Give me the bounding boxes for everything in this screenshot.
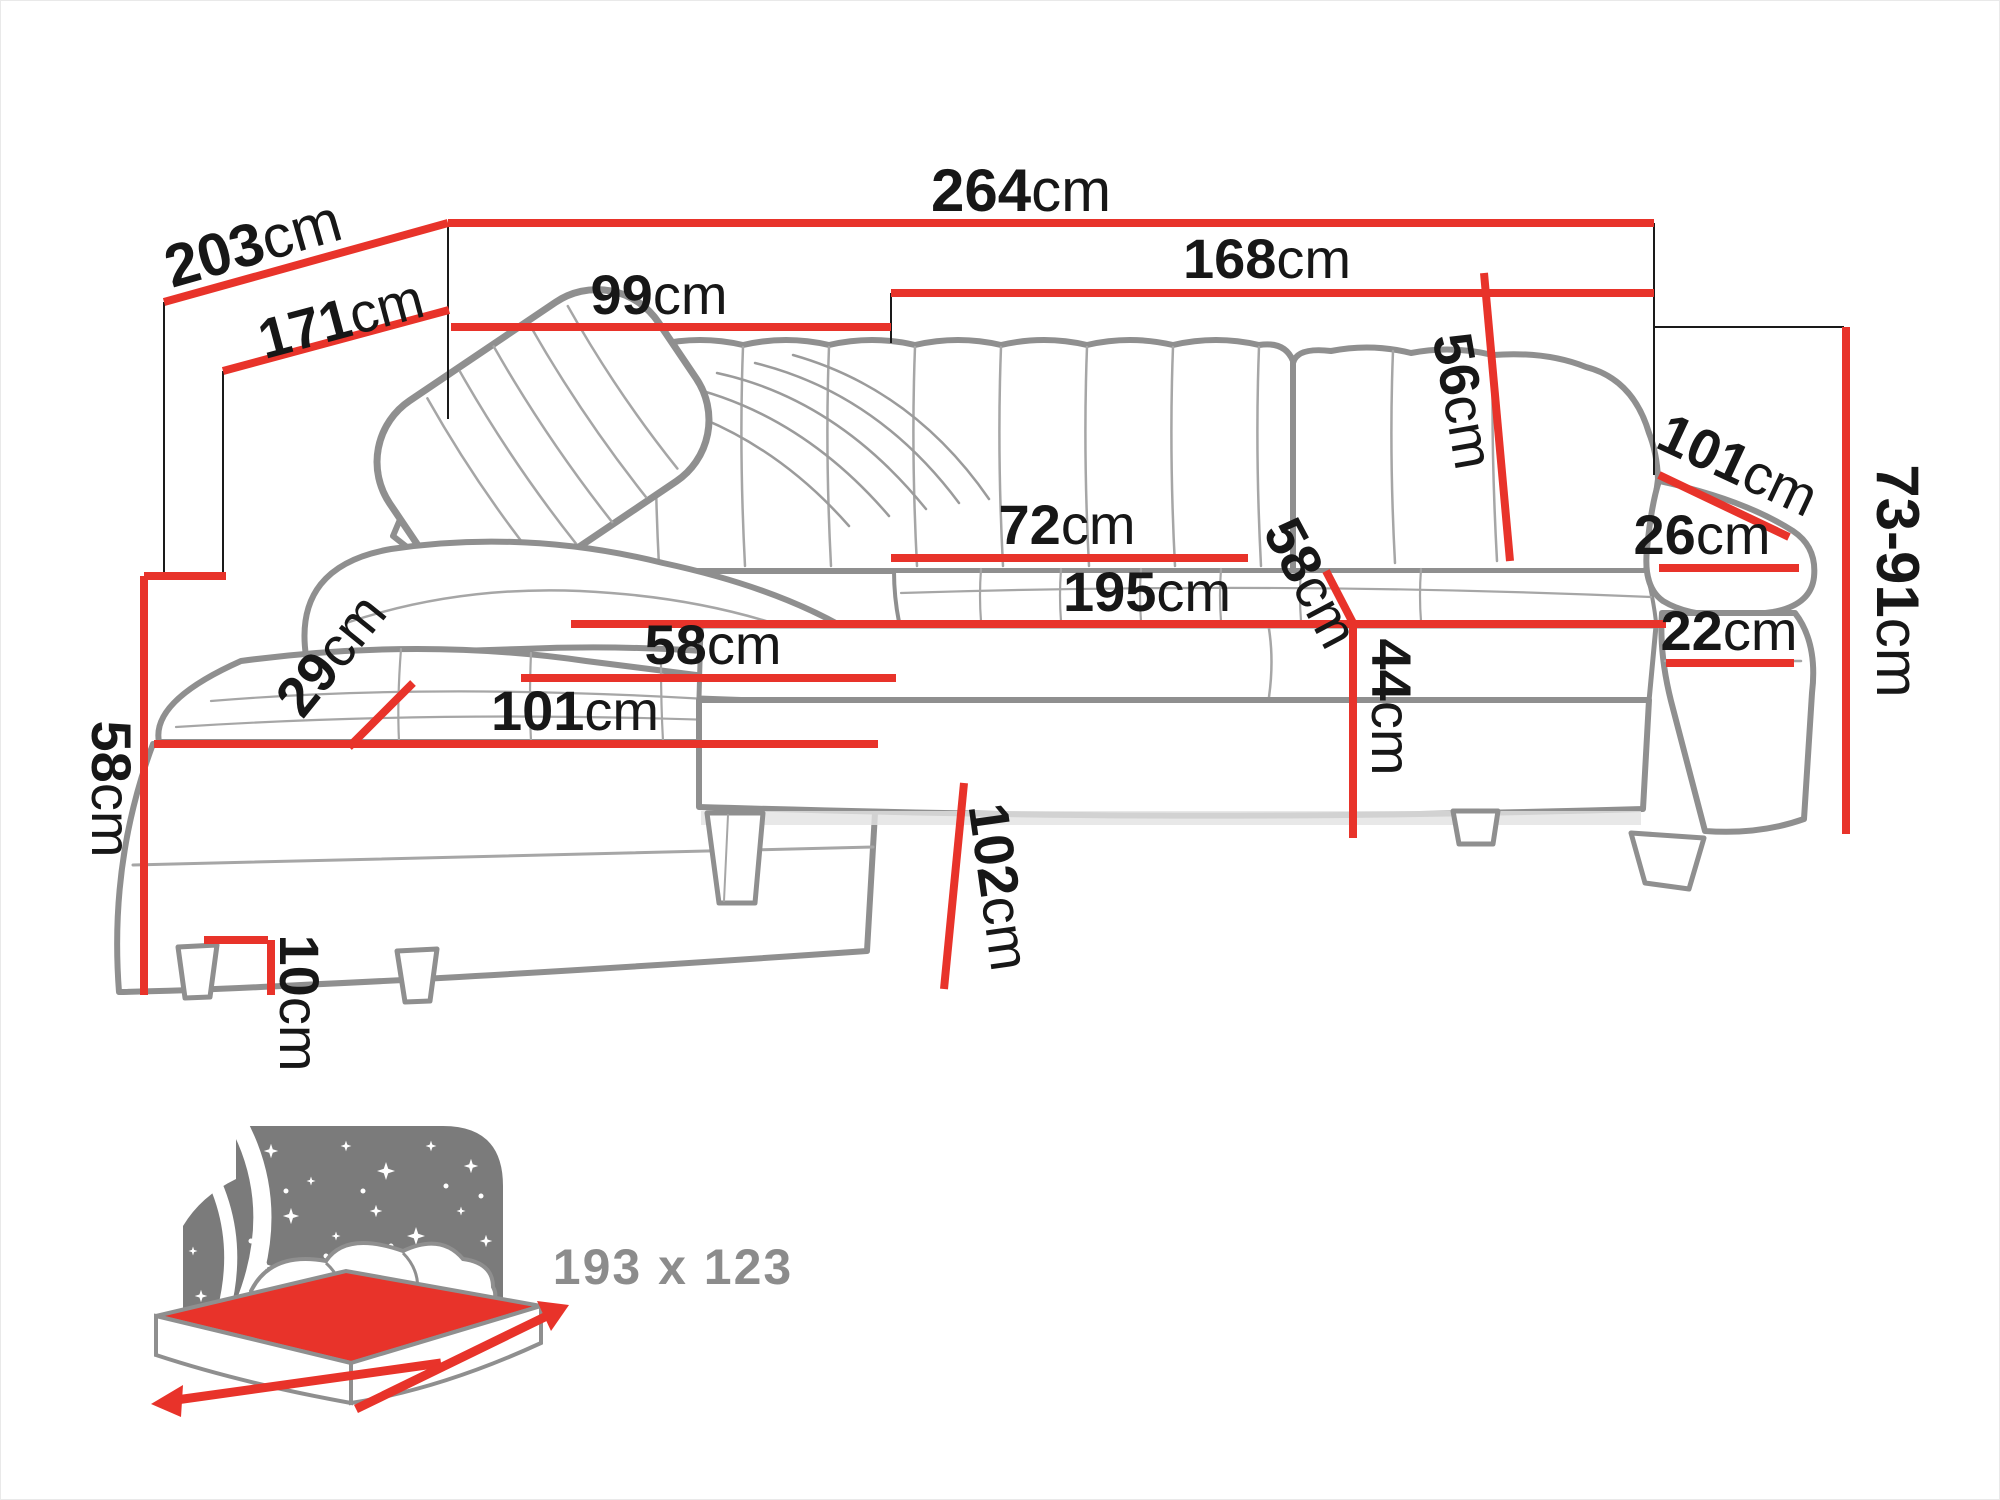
dim-label-10: 10cm: [271, 935, 327, 1072]
dim-label-264: 264cm: [931, 161, 1111, 221]
seat-cushion-front: [699, 626, 1656, 709]
dim-label-101-chaise: 101cm: [491, 683, 659, 739]
sleeping-function-icon: [151, 1119, 569, 1417]
dim-label-26: 26cm: [1634, 507, 1771, 563]
dim-label-58-height: 58cm: [83, 721, 139, 858]
dim-label-73-91: 73-91cm: [1867, 464, 1927, 697]
dim-label-195: 195cm: [1063, 564, 1231, 620]
dim-label-99: 99cm: [591, 267, 728, 323]
dim-label-22: 22cm: [1661, 603, 1798, 659]
sleeping-area-label: 193 x 123: [553, 1238, 793, 1296]
dim-label-58-chaise: 58cm: [645, 617, 782, 673]
dim-label-44: 44cm: [1363, 639, 1419, 776]
base-front: [699, 700, 1649, 816]
dim-label-168: 168cm: [1183, 231, 1351, 287]
sofa-dimension-diagram: 203cm 171cm 264cm 99cm 168cm 56cm 101cm …: [0, 0, 2000, 1500]
dim-label-72: 72cm: [999, 497, 1136, 553]
